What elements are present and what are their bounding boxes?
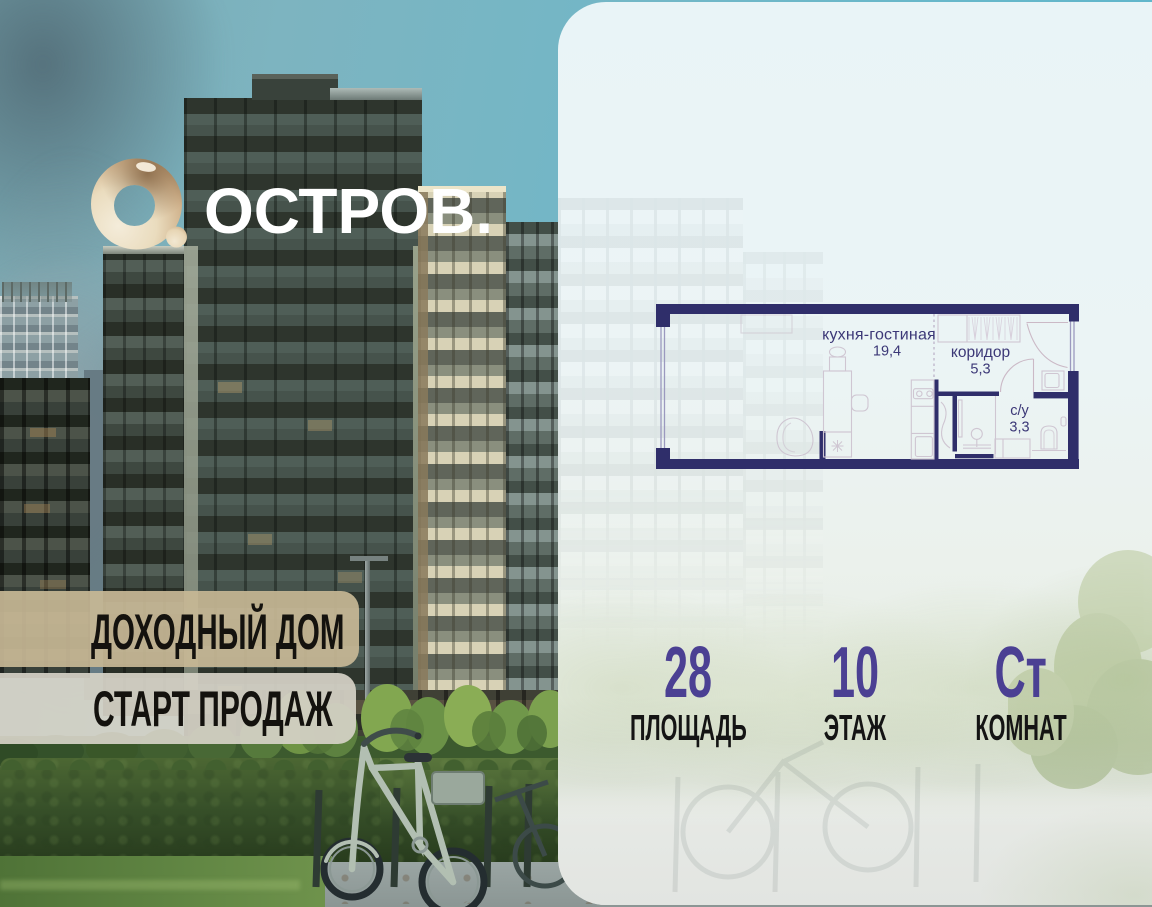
svg-text:19,4: 19,4 bbox=[873, 344, 901, 360]
svg-text:3,3: 3,3 bbox=[1009, 420, 1029, 436]
svg-text:коридор: коридор bbox=[951, 344, 1010, 361]
svg-text:5,3: 5,3 bbox=[970, 362, 990, 378]
svg-text:с/у: с/у bbox=[1010, 403, 1029, 419]
svg-text:кухня-гостиная: кухня-гостиная bbox=[822, 327, 936, 344]
